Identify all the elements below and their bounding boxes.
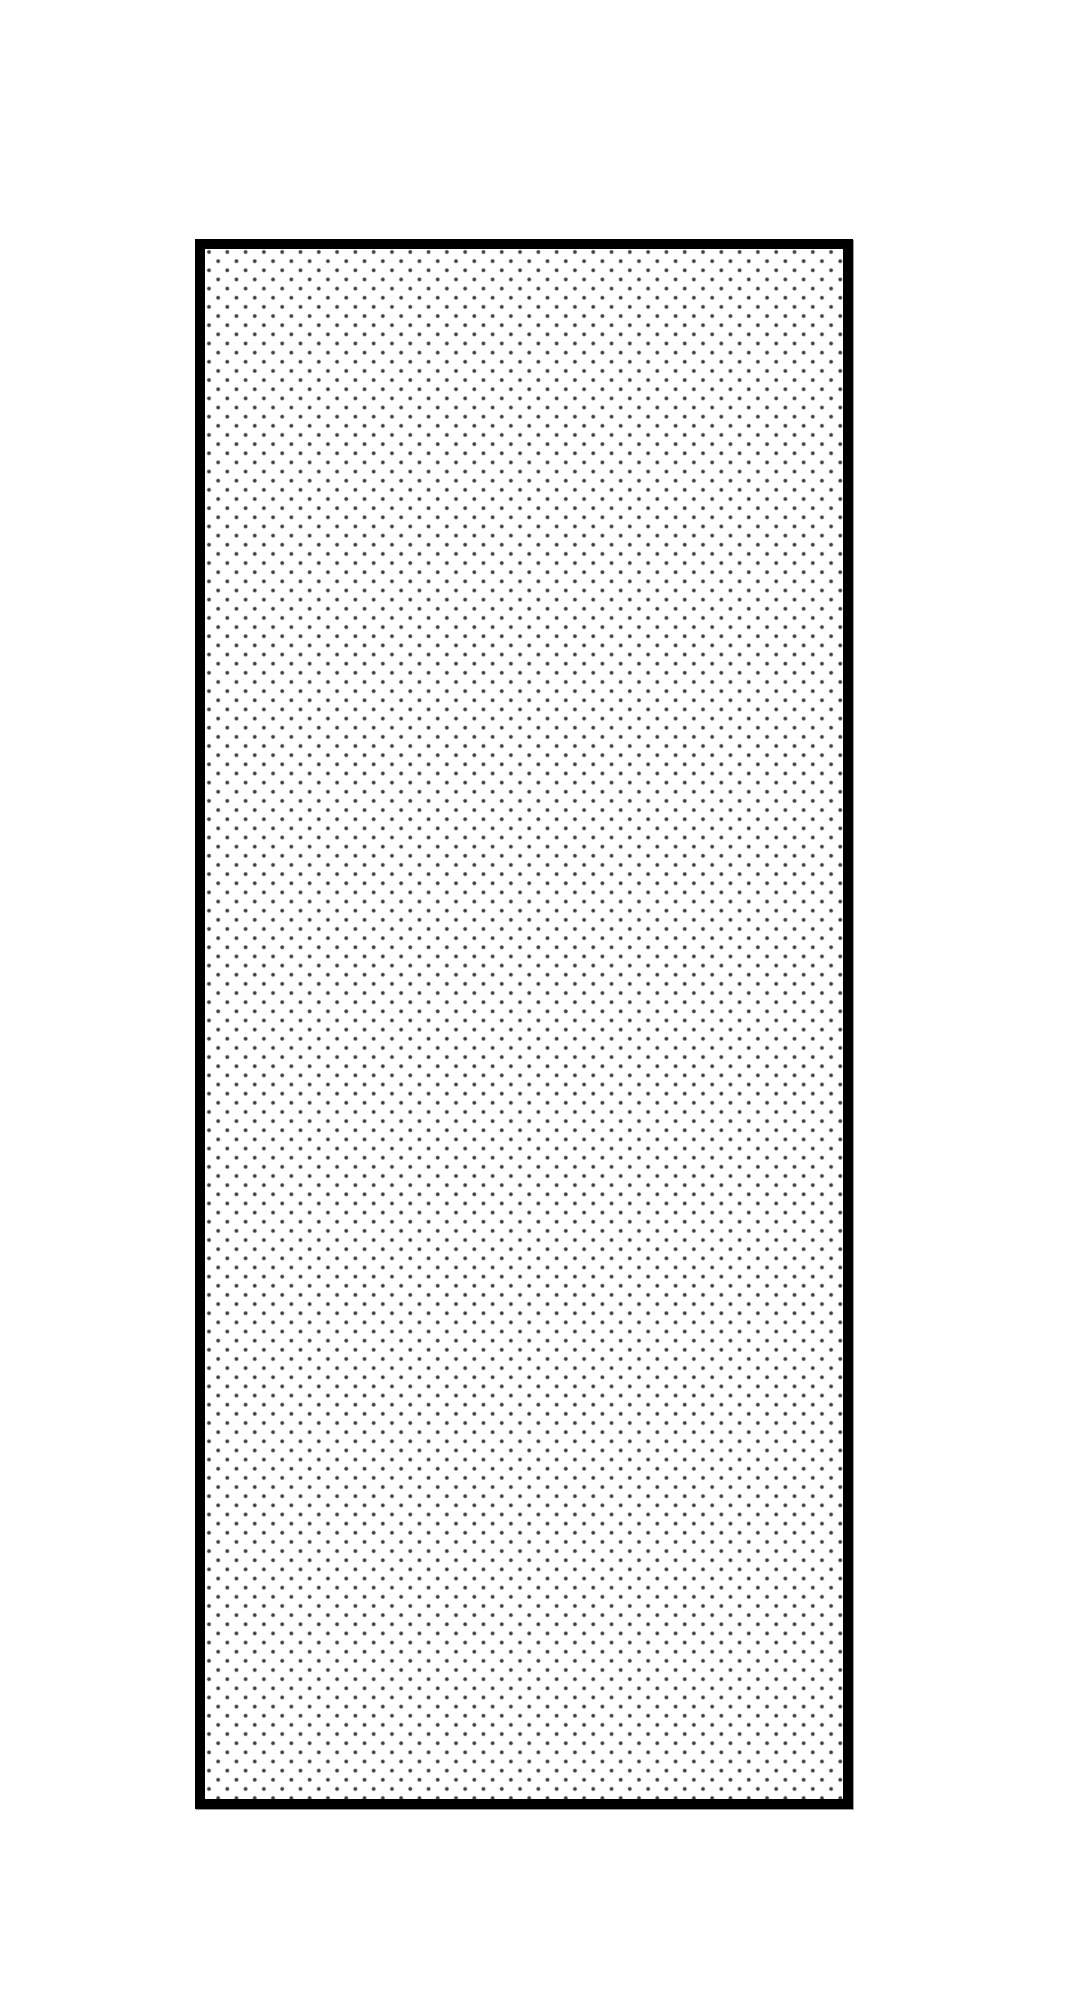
- page-background: [0, 0, 1080, 1990]
- dotted-hatch-rectangle: [195, 239, 853, 1809]
